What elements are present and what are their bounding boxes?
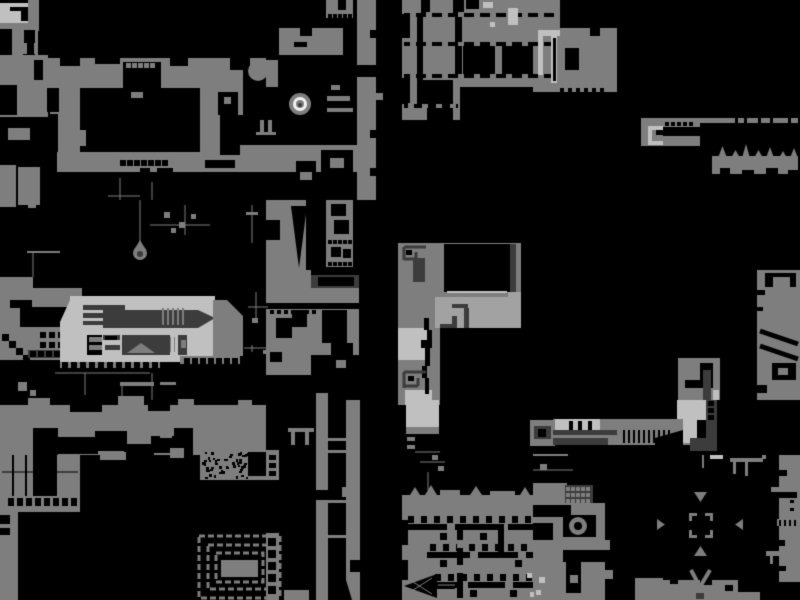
map-viewport	[0, 0, 800, 600]
world-map-canvas	[0, 0, 800, 600]
